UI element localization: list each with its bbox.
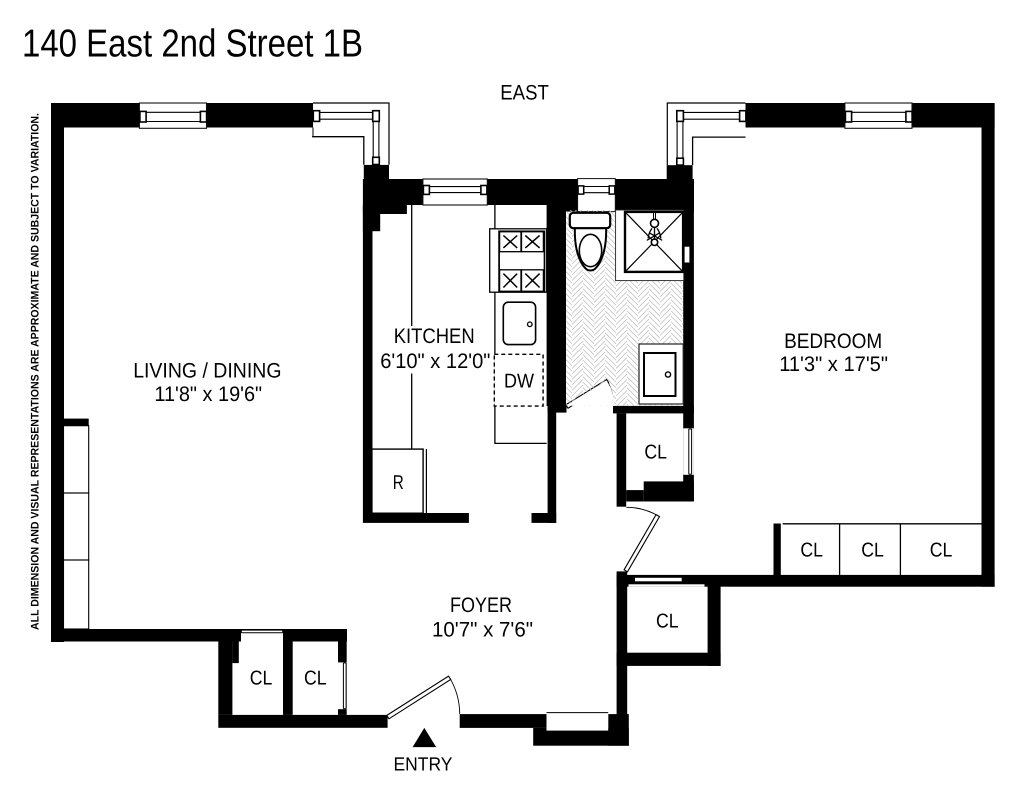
svg-text:ALL DIMENSION AND VISUAL REPRE: ALL DIMENSION AND VISUAL REPRESENTATIONS… (30, 113, 42, 630)
svg-text:10'7" x 7'6": 10'7" x 7'6" (432, 619, 533, 642)
svg-text:CL: CL (861, 540, 884, 562)
svg-text:CL: CL (930, 540, 953, 562)
svg-text:6'10" x 12'0": 6'10" x 12'0" (380, 350, 490, 373)
svg-text:CL: CL (800, 540, 823, 562)
svg-text:140 East 2nd Street 1B: 140 East 2nd Street 1B (22, 23, 363, 66)
svg-text:ENTRY: ENTRY (394, 755, 453, 776)
svg-text:FOYER: FOYER (450, 594, 512, 617)
svg-text:EAST: EAST (500, 82, 549, 105)
svg-text:BEDROOM: BEDROOM (784, 330, 882, 353)
svg-text:DW: DW (504, 370, 534, 392)
svg-text:11'3" x 17'5": 11'3" x 17'5" (779, 353, 888, 376)
svg-text:LIVING / DINING: LIVING / DINING (133, 359, 281, 382)
svg-text:CL: CL (304, 667, 327, 689)
svg-text:CL: CL (656, 611, 679, 633)
svg-text:CL: CL (250, 667, 273, 689)
svg-text:R: R (393, 472, 404, 494)
svg-text:CL: CL (644, 442, 667, 464)
svg-text:11'8" x 19'6": 11'8" x 19'6" (154, 383, 262, 406)
svg-text:KITCHEN: KITCHEN (394, 325, 475, 348)
